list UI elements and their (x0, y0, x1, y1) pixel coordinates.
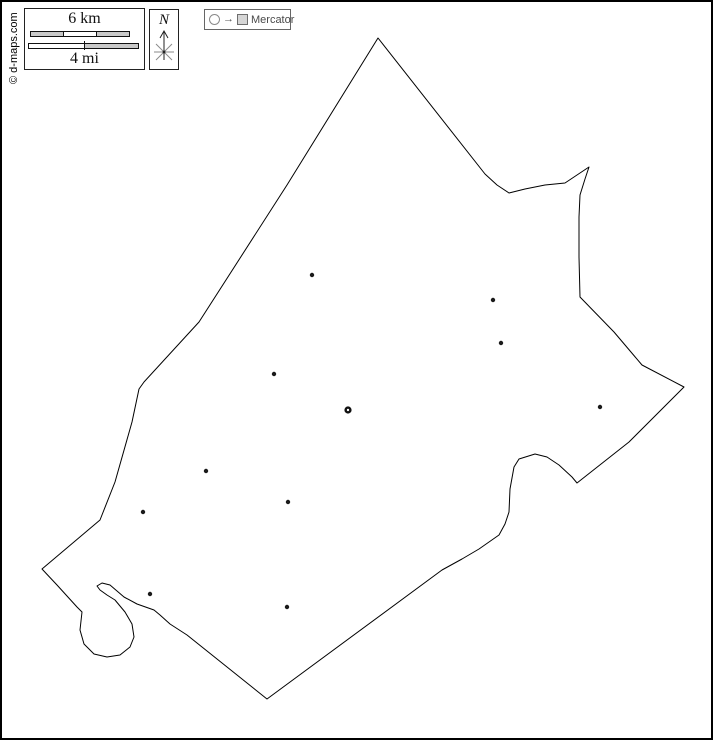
town-marker (598, 405, 602, 409)
scale-segment (84, 44, 139, 48)
town-marker (310, 273, 314, 277)
projection-box: → Mercator (204, 9, 291, 30)
map-page: © d-maps.com 6 km 4 mi N → Mercator (0, 0, 713, 740)
scale-tick (84, 41, 85, 50)
scale-bar-km (30, 31, 130, 37)
scale-bar-mi (28, 43, 139, 49)
town-marker (491, 298, 495, 302)
scale-segment (31, 32, 63, 36)
town-marker (204, 469, 208, 473)
map-canvas (2, 2, 713, 740)
arrow-right-icon: → (223, 14, 234, 25)
scale-km-label: 6 km (25, 10, 144, 28)
town-marker (141, 510, 145, 514)
compass-star-icon (152, 29, 176, 63)
town-marker (286, 500, 290, 504)
territory-outline (42, 38, 684, 699)
scale-bar-box: 6 km 4 mi (24, 8, 145, 70)
town-marker (499, 341, 503, 345)
town-marker (285, 605, 289, 609)
capital-marker (346, 408, 351, 413)
compass-box: N (149, 9, 179, 70)
town-marker (272, 372, 276, 376)
scale-segment (63, 32, 97, 36)
scale-mi-label: 4 mi (25, 50, 144, 68)
scale-segment (97, 32, 129, 36)
square-marker-icon (237, 14, 248, 25)
north-label: N (150, 12, 178, 29)
copyright-credit: © d-maps.com (8, 12, 20, 84)
town-marker (148, 592, 152, 596)
projection-label: Mercator (251, 14, 294, 26)
circle-marker-icon (209, 14, 220, 25)
scale-segment (29, 44, 84, 48)
